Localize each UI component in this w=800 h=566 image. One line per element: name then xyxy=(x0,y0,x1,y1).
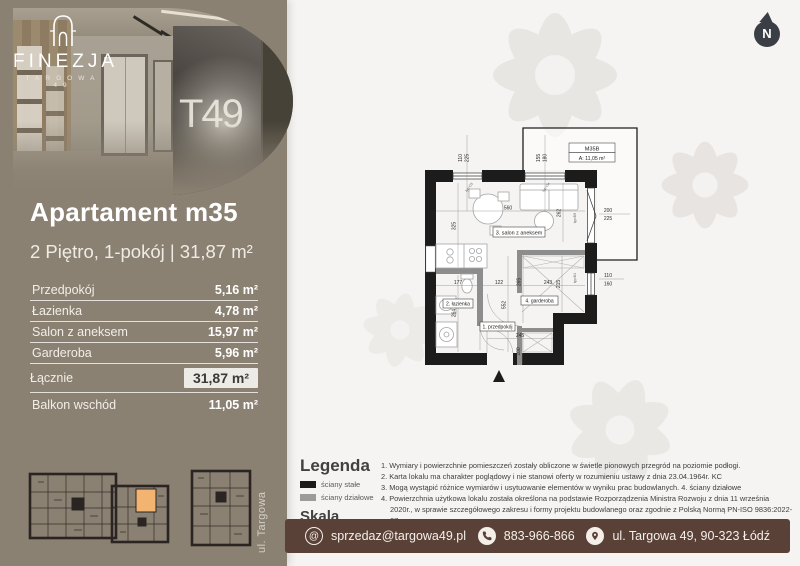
street-label: ul. Targowa xyxy=(256,477,268,553)
svg-text:215: 215 xyxy=(556,280,562,289)
legend-item-partition-walls: ściany działowe xyxy=(300,493,375,502)
contact-phone[interactable]: 883-966-866 xyxy=(478,527,575,545)
svg-text:262: 262 xyxy=(557,209,563,218)
apartment-subtitle: 2 Piętro, 1-pokój | 31,87 m² xyxy=(30,241,253,263)
room-label-garderoba: 4. garderoba xyxy=(525,299,554,305)
legend-label: ściany stałe xyxy=(321,480,360,489)
svg-text:245: 245 xyxy=(516,333,525,339)
svg-text:100: 100 xyxy=(516,347,522,356)
balcony-tag-area: A: 11,05 m² xyxy=(579,156,606,162)
compass-arrow-icon xyxy=(759,11,774,24)
svg-text:110: 110 xyxy=(458,154,464,162)
legend-label: ściany działowe xyxy=(321,493,374,502)
area-table: Przedpokój 5,16 m² Łazienka 4,78 m² Salo… xyxy=(30,280,258,415)
svg-text:177: 177 xyxy=(454,280,463,286)
svg-text:265: 265 xyxy=(517,278,523,287)
balcony-label: Balkon wschód xyxy=(32,398,116,412)
disclaimer-notes: 1. Wymiary i powierzchnie pomieszczeń zo… xyxy=(381,460,793,526)
svg-text:160: 160 xyxy=(604,282,613,288)
apartment-title: Apartament m35 xyxy=(30,197,238,228)
entrance-arrow-icon xyxy=(493,370,505,382)
table-row: Przedpokój 5,16 m² xyxy=(30,280,258,301)
svg-text:155: 155 xyxy=(536,154,542,163)
phone-icon xyxy=(478,527,496,545)
balcony-area: 11,05 m² xyxy=(209,398,258,412)
svg-text:typ:B4: typ:B4 xyxy=(573,273,577,283)
contact-address[interactable]: ul. Targowa 49, 90-323 Łódź xyxy=(586,527,770,545)
svg-text:560: 560 xyxy=(504,206,513,212)
wall-shaft xyxy=(426,246,435,272)
balcony-tag-id: M35B xyxy=(585,146,600,152)
solid-wall-swatch xyxy=(300,481,316,488)
contact-email[interactable]: @ sprzedaz@targowa49.pl xyxy=(305,527,466,545)
svg-text:225: 225 xyxy=(604,216,613,222)
table-row: Garderoba 5,96 m² xyxy=(30,343,258,364)
room-label-lazienka: 2. łazienka xyxy=(446,302,470,308)
brand-logo: FINEZJA TARGOWA 49 xyxy=(13,13,113,89)
svg-text:122: 122 xyxy=(495,280,504,286)
brand-name: FINEZJA xyxy=(13,51,113,73)
info-panel: T49 FINEZJA TARGOWA 49 Apartament m35 2 … xyxy=(0,0,287,566)
room-label-salon: 3. salon z aneksem xyxy=(496,230,543,236)
legend-item-solid-walls: ściany stałe xyxy=(300,480,375,489)
brochure-page: T49 FINEZJA TARGOWA 49 Apartament m35 2 … xyxy=(0,0,800,566)
svg-text:264: 264 xyxy=(452,309,458,318)
compass-north-label: N xyxy=(754,21,780,47)
svg-text:180: 180 xyxy=(543,154,549,163)
svg-text:225: 225 xyxy=(465,154,471,163)
highlighted-unit-m35 xyxy=(136,489,156,512)
svg-text:typ:B9: typ:B9 xyxy=(573,213,577,223)
room-label: Garderoba xyxy=(32,346,92,360)
arch-logo-icon xyxy=(50,13,76,47)
photo-fade xyxy=(13,121,293,195)
svg-text:552: 552 xyxy=(502,301,508,310)
table-row-balcony: Balkon wschód 11,05 m² xyxy=(30,393,258,415)
svg-text:325: 325 xyxy=(452,222,458,231)
table-row: Łazienka 4,78 m² xyxy=(30,301,258,322)
svg-text:200: 200 xyxy=(604,208,613,214)
room-area: 5,96 m² xyxy=(215,346,258,360)
room-name-labels: 3. salon z aneksem 2. łazienka 1. przedp… xyxy=(443,227,558,331)
room-label-przedpokoj: 1. przedpokój xyxy=(482,325,512,331)
legend-title: Legenda xyxy=(300,456,375,476)
table-row-total: Łącznie 31,87 m² xyxy=(30,364,258,393)
table-row: Salon z aneksem 15,97 m² xyxy=(30,322,258,343)
contact-address-text: ul. Targowa 49, 90-323 Łódź xyxy=(612,529,770,543)
total-area-badge: 31,87 m² xyxy=(184,368,258,388)
contact-email-text: sprzedaz@targowa49.pl xyxy=(331,529,466,543)
note-line: 1. Wymiary i powierzchnie pomieszczeń zo… xyxy=(381,460,793,471)
room-area: 15,97 m² xyxy=(208,325,258,339)
partition-wall-swatch xyxy=(300,494,316,501)
location-pin-icon xyxy=(586,527,604,545)
total-label: Łącznie xyxy=(30,371,73,385)
north-compass: N xyxy=(752,12,782,47)
at-icon: @ xyxy=(305,527,323,545)
room-label: Salon z aneksem xyxy=(32,325,128,339)
room-label: Przedpokój xyxy=(32,283,95,297)
svg-text:110: 110 xyxy=(604,273,612,279)
contact-phone-text: 883-966-866 xyxy=(504,529,575,543)
contact-bar: @ sprzedaz@targowa49.pl 883-966-866 ul. … xyxy=(285,519,790,553)
room-area: 4,78 m² xyxy=(215,304,258,318)
room-area: 5,16 m² xyxy=(215,283,258,297)
note-line: 3. Mogą wystąpić różnice wymiarów i usyt… xyxy=(381,482,793,493)
note-line: 2. Karta lokalu ma charakter poglądowy i… xyxy=(381,471,793,482)
svg-text:243: 243 xyxy=(544,280,553,286)
floor-overview-plan xyxy=(20,462,270,550)
room-label: Łazienka xyxy=(32,304,82,318)
brand-subname: TARGOWA 49 xyxy=(13,75,113,89)
apartment-floorplan: M35B A: 11,05 m² xyxy=(410,80,710,445)
